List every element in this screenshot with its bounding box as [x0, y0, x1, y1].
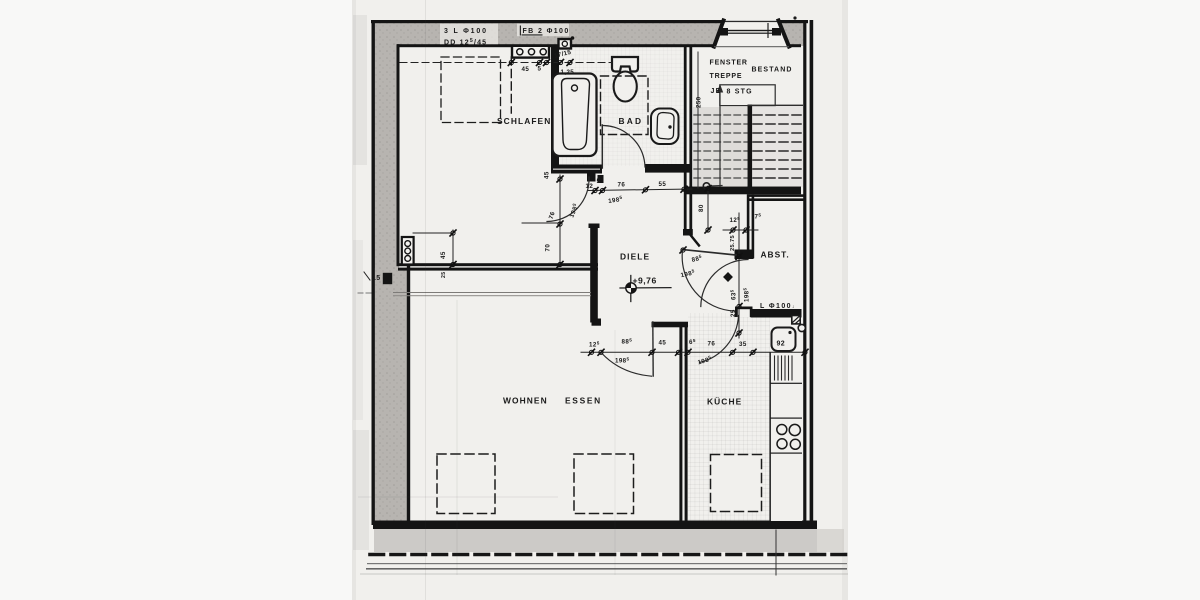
svg-text:76: 76: [618, 182, 626, 189]
svg-text:TREPPE: TREPPE: [710, 73, 743, 80]
svg-text:ABST.: ABST.: [761, 250, 790, 260]
svg-text:92: 92: [777, 341, 786, 348]
svg-text:55: 55: [659, 181, 667, 188]
svg-text:15: 15: [372, 275, 381, 282]
svg-text:70: 70: [545, 244, 552, 252]
svg-text:WOHNEN: WOHNEN: [503, 396, 548, 406]
svg-text:250: 250: [696, 96, 703, 108]
svg-text:L Φ100↓: L Φ100↓: [760, 303, 796, 310]
svg-text:25.75: 25.75: [730, 235, 736, 251]
svg-text:8 STG: 8 STG: [727, 89, 753, 96]
svg-text:FENSTER: FENSTER: [710, 60, 748, 67]
svg-text:3 L Φ100: 3 L Φ100: [444, 28, 488, 35]
svg-text:+9,76: +9,76: [633, 276, 657, 286]
svg-text:45: 45: [659, 340, 667, 347]
svg-text:5: 5: [538, 66, 542, 73]
svg-text:45: 45: [440, 251, 447, 259]
svg-text:SCHLAFEN: SCHLAFEN: [497, 116, 551, 126]
svg-text:KÜCHE: KÜCHE: [707, 397, 742, 407]
svg-text:5: 5: [597, 178, 601, 185]
svg-text:ESSEN: ESSEN: [565, 396, 602, 406]
svg-text:35: 35: [739, 341, 747, 348]
svg-text:12: 12: [586, 183, 594, 190]
svg-text:1,25: 1,25: [561, 69, 575, 76]
svg-text:76: 76: [708, 341, 716, 348]
svg-text:80: 80: [698, 204, 705, 212]
svg-text:DIELE: DIELE: [620, 252, 650, 262]
svg-text:25: 25: [441, 271, 447, 278]
svg-text:DD 125/45: DD 125/45: [444, 38, 487, 47]
svg-text:JE: JE: [711, 88, 722, 95]
svg-text:FB 2 Φ100: FB 2 Φ100: [523, 28, 570, 35]
svg-text:BESTAND: BESTAND: [752, 67, 793, 74]
svg-text:BAD: BAD: [619, 116, 644, 126]
svg-text:45: 45: [544, 171, 551, 179]
svg-text:45: 45: [522, 66, 530, 73]
svg-text:25: 25: [730, 309, 737, 317]
